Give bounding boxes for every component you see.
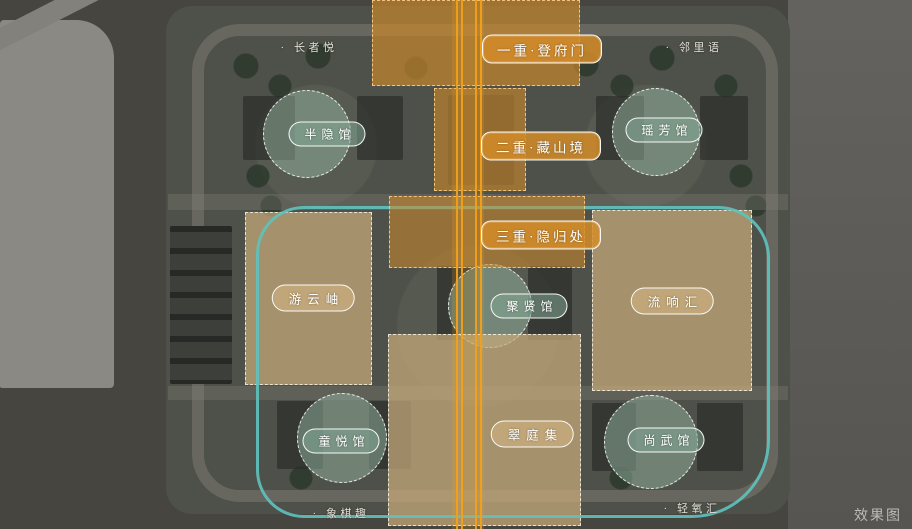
- masterplan-rendering: 一重·登府门 二重·藏山境 三重·隐归处 半隐馆 瑶芳馆 聚贤馆 童悦馆 尚武馆…: [0, 0, 912, 529]
- pavilion-label-banyin: 半隐馆: [288, 122, 365, 147]
- axis-line: [461, 0, 463, 529]
- pavilion-label-tongyue: 童悦馆: [302, 429, 379, 454]
- garden-label-liuxianghui: 流响汇: [631, 288, 714, 315]
- poi-label-linliyu: · 邻里语: [666, 39, 723, 55]
- pavilion-label-shangwu: 尚武馆: [627, 428, 704, 453]
- road-right: [788, 0, 912, 529]
- pavilion-label-yaofang: 瑶芳馆: [625, 118, 702, 143]
- existing-buildings-strip: [170, 226, 232, 384]
- render-watermark: 效果图: [854, 505, 902, 525]
- axis-line: [475, 0, 477, 529]
- axis-label-first-gate: 一重·登府门: [482, 35, 602, 64]
- pavilion-label-juxian: 聚贤馆: [490, 294, 567, 319]
- poi-label-zhangzheyue: · 长者悦: [281, 39, 338, 55]
- city-block-topleft: [0, 20, 114, 388]
- axis-label-second-realm: 二重·藏山境: [481, 132, 601, 161]
- building-footprint: [700, 96, 748, 160]
- garden-label-youyunxiu: 游云岫: [272, 285, 355, 312]
- poi-label-xiangqiqu: · 象棋趣: [313, 505, 370, 521]
- poi-label-qingyanghui: · 轻氧汇: [664, 500, 721, 516]
- axis-line: [480, 0, 482, 529]
- garden-label-cuitingji: 翠庭集: [491, 421, 574, 448]
- axis-line: [456, 0, 458, 529]
- axis-label-third-haven: 三重·隐归处: [481, 221, 601, 250]
